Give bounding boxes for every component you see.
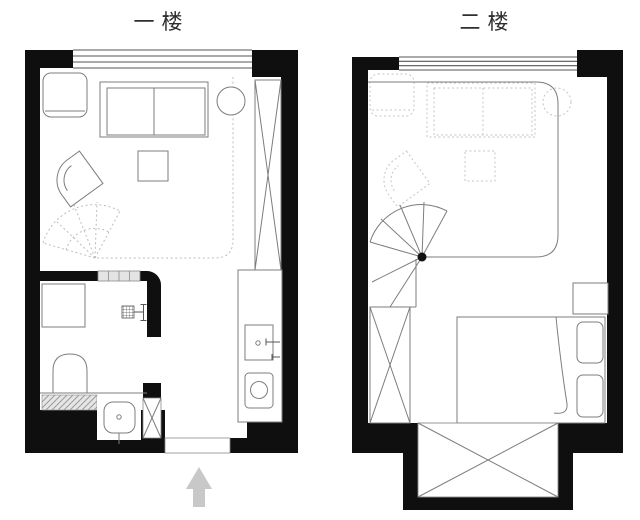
window-icon <box>73 50 252 68</box>
double-bed-icon <box>457 317 605 423</box>
wall-bottom-left <box>352 423 418 453</box>
glass-partition-icon <box>98 271 140 281</box>
wardrobe-icon <box>370 307 410 423</box>
entrance-arrow-icon <box>186 467 212 507</box>
closet-wall-bottom <box>403 497 573 510</box>
washing-machine-icon <box>245 373 273 408</box>
window-icon <box>399 57 577 70</box>
wall-right <box>281 50 298 453</box>
washbasin-icon <box>97 396 141 444</box>
ghost-furniture <box>370 74 571 207</box>
kitchen <box>238 270 282 422</box>
floor-plan-image: 一楼 二楼 <box>0 0 640 520</box>
entry-door-opening <box>165 438 230 453</box>
storage-closet-icon <box>418 423 558 497</box>
ghost-lounge-chair-icon <box>374 151 430 207</box>
ghost-coffee-table-icon <box>465 151 495 181</box>
shower-tray-icon <box>42 284 85 327</box>
bath-mat-icon <box>42 395 97 410</box>
wall-bottom-right <box>558 423 623 453</box>
coffee-table-icon <box>138 151 168 181</box>
wall-left <box>25 50 40 453</box>
first-floor-furniture <box>43 73 281 270</box>
spiral-stair-projection-icon <box>43 202 120 258</box>
spiral-staircase-icon <box>370 202 447 307</box>
pillow-icon <box>577 375 603 417</box>
ghost-plant-icon <box>543 88 571 116</box>
void-opening-railing <box>368 82 558 257</box>
ghost-sofa-icon <box>427 83 535 137</box>
first-floor-plan <box>25 50 298 507</box>
toilet-icon <box>53 354 87 393</box>
wall-top-left-block <box>25 50 73 68</box>
bathroom-wall-top <box>40 271 98 281</box>
stair-steps <box>370 257 422 307</box>
tall-wardrobe-icon <box>255 80 281 270</box>
wall-kitchen-step <box>247 422 298 453</box>
shower-head-icon <box>122 304 147 321</box>
laundry-cabinet-icon <box>143 398 161 438</box>
sofa-icon <box>100 82 208 137</box>
stair-center-post <box>418 253 427 262</box>
pillow-icon <box>577 322 603 363</box>
floor-plans-drawing <box>0 0 640 520</box>
plant-pot-icon <box>217 87 245 115</box>
wall-left <box>352 57 368 453</box>
storage-cabinet-icon <box>43 73 87 117</box>
lounge-chair-icon <box>47 151 103 207</box>
nightstand-icon <box>573 283 608 314</box>
bathroom-wall-stub <box>143 383 161 398</box>
wall-right <box>607 50 623 453</box>
wall-top-left-block <box>352 57 399 70</box>
second-floor-plan <box>352 50 623 510</box>
